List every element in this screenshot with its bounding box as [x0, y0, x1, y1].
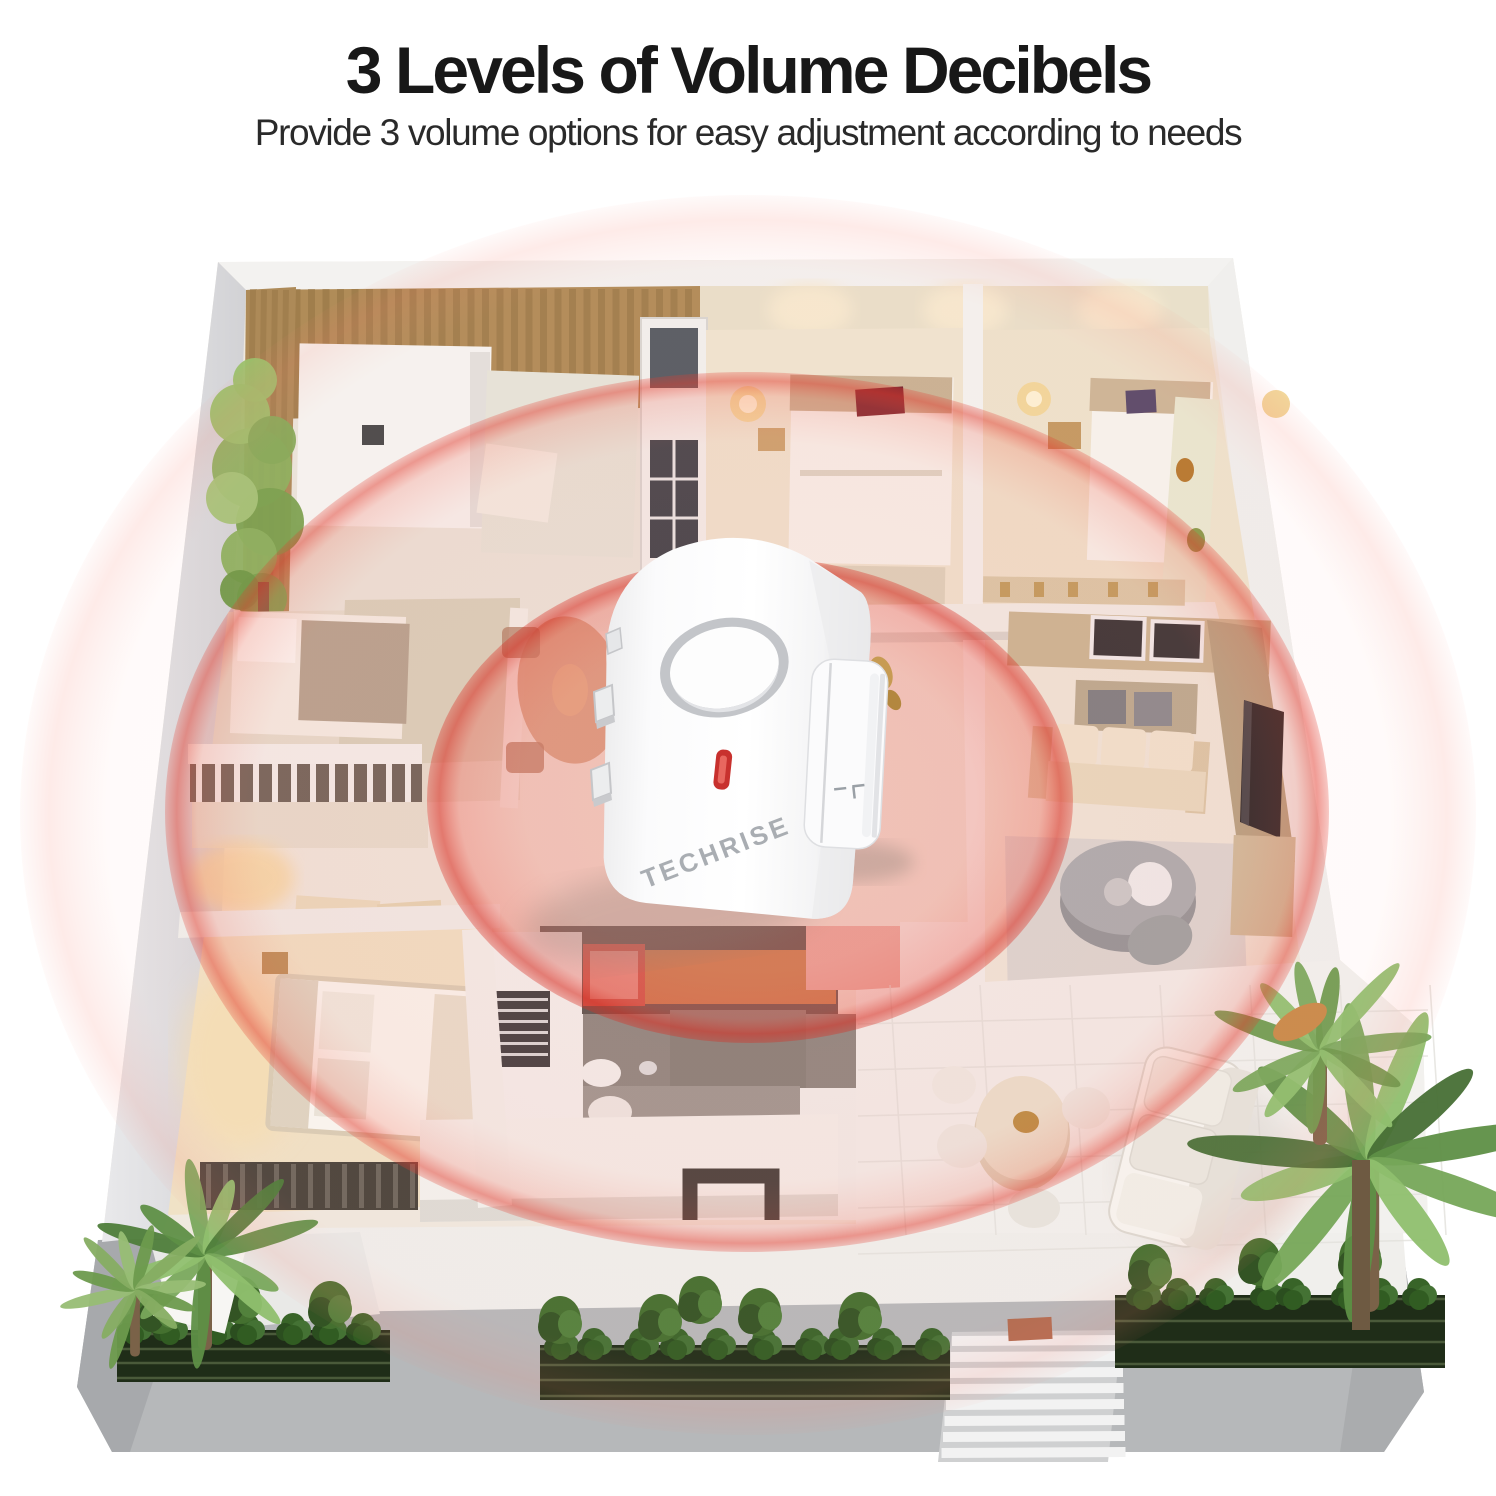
svg-text:Provide 3 volume options for e: Provide 3 volume options for easy adjust…: [255, 112, 1242, 153]
svg-text:3 Levels of Volume Decibels: 3 Levels of Volume Decibels: [346, 33, 1151, 107]
